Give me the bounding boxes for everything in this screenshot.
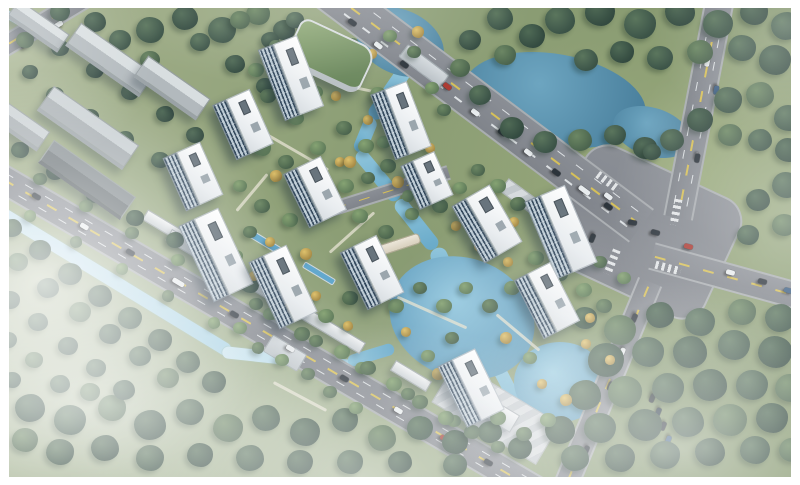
- residential-tower: [437, 348, 505, 428]
- rooftop-unit: [479, 385, 490, 397]
- rooftop-unit: [380, 269, 391, 280]
- warehouse-building: [65, 23, 155, 98]
- rooftop-unit: [553, 198, 568, 218]
- residential-tower: [162, 141, 223, 211]
- residential-tower: [283, 156, 347, 228]
- rooftop-unit: [495, 220, 507, 232]
- rooftop-unit: [464, 360, 478, 377]
- rooftop-unit: [423, 159, 435, 173]
- residential-tower: [451, 184, 522, 263]
- rooftop-unit: [188, 151, 201, 167]
- rooftop-unit: [396, 91, 409, 108]
- residential-tower: [248, 245, 317, 330]
- residential-tower: [178, 208, 253, 303]
- rooftop-unit: [555, 297, 566, 308]
- rooftop-unit: [225, 253, 237, 267]
- residential-tower: [212, 88, 274, 159]
- rooftop-unit: [365, 245, 379, 262]
- rooftop-unit: [309, 166, 323, 182]
- rooftop-unit: [207, 221, 223, 241]
- rooftop-unit: [200, 173, 210, 183]
- rooftop-unit: [479, 196, 494, 213]
- rooftop-unit: [285, 47, 299, 66]
- rooftop-unit: [540, 273, 554, 290]
- residential-tower: [340, 234, 405, 309]
- rooftop-unit: [276, 257, 291, 276]
- rooftop-unit: [291, 285, 302, 297]
- rooftop-unit: [238, 99, 251, 115]
- rooftop-unit: [250, 121, 260, 132]
- rooftop-unit: [322, 189, 333, 200]
- warehouse-building: [9, 8, 70, 53]
- rooftop-unit: [299, 77, 310, 89]
- rooftop-unit: [409, 119, 419, 130]
- residential-tower: [400, 151, 453, 210]
- aerial-rendering-frame: [0, 0, 800, 485]
- rooftop-unit: [433, 177, 442, 186]
- residential-tower: [370, 80, 431, 159]
- render-scene: [9, 8, 791, 477]
- buildings-layer: [9, 8, 791, 477]
- rooftop-unit: [570, 230, 582, 244]
- residential-tower: [524, 185, 597, 280]
